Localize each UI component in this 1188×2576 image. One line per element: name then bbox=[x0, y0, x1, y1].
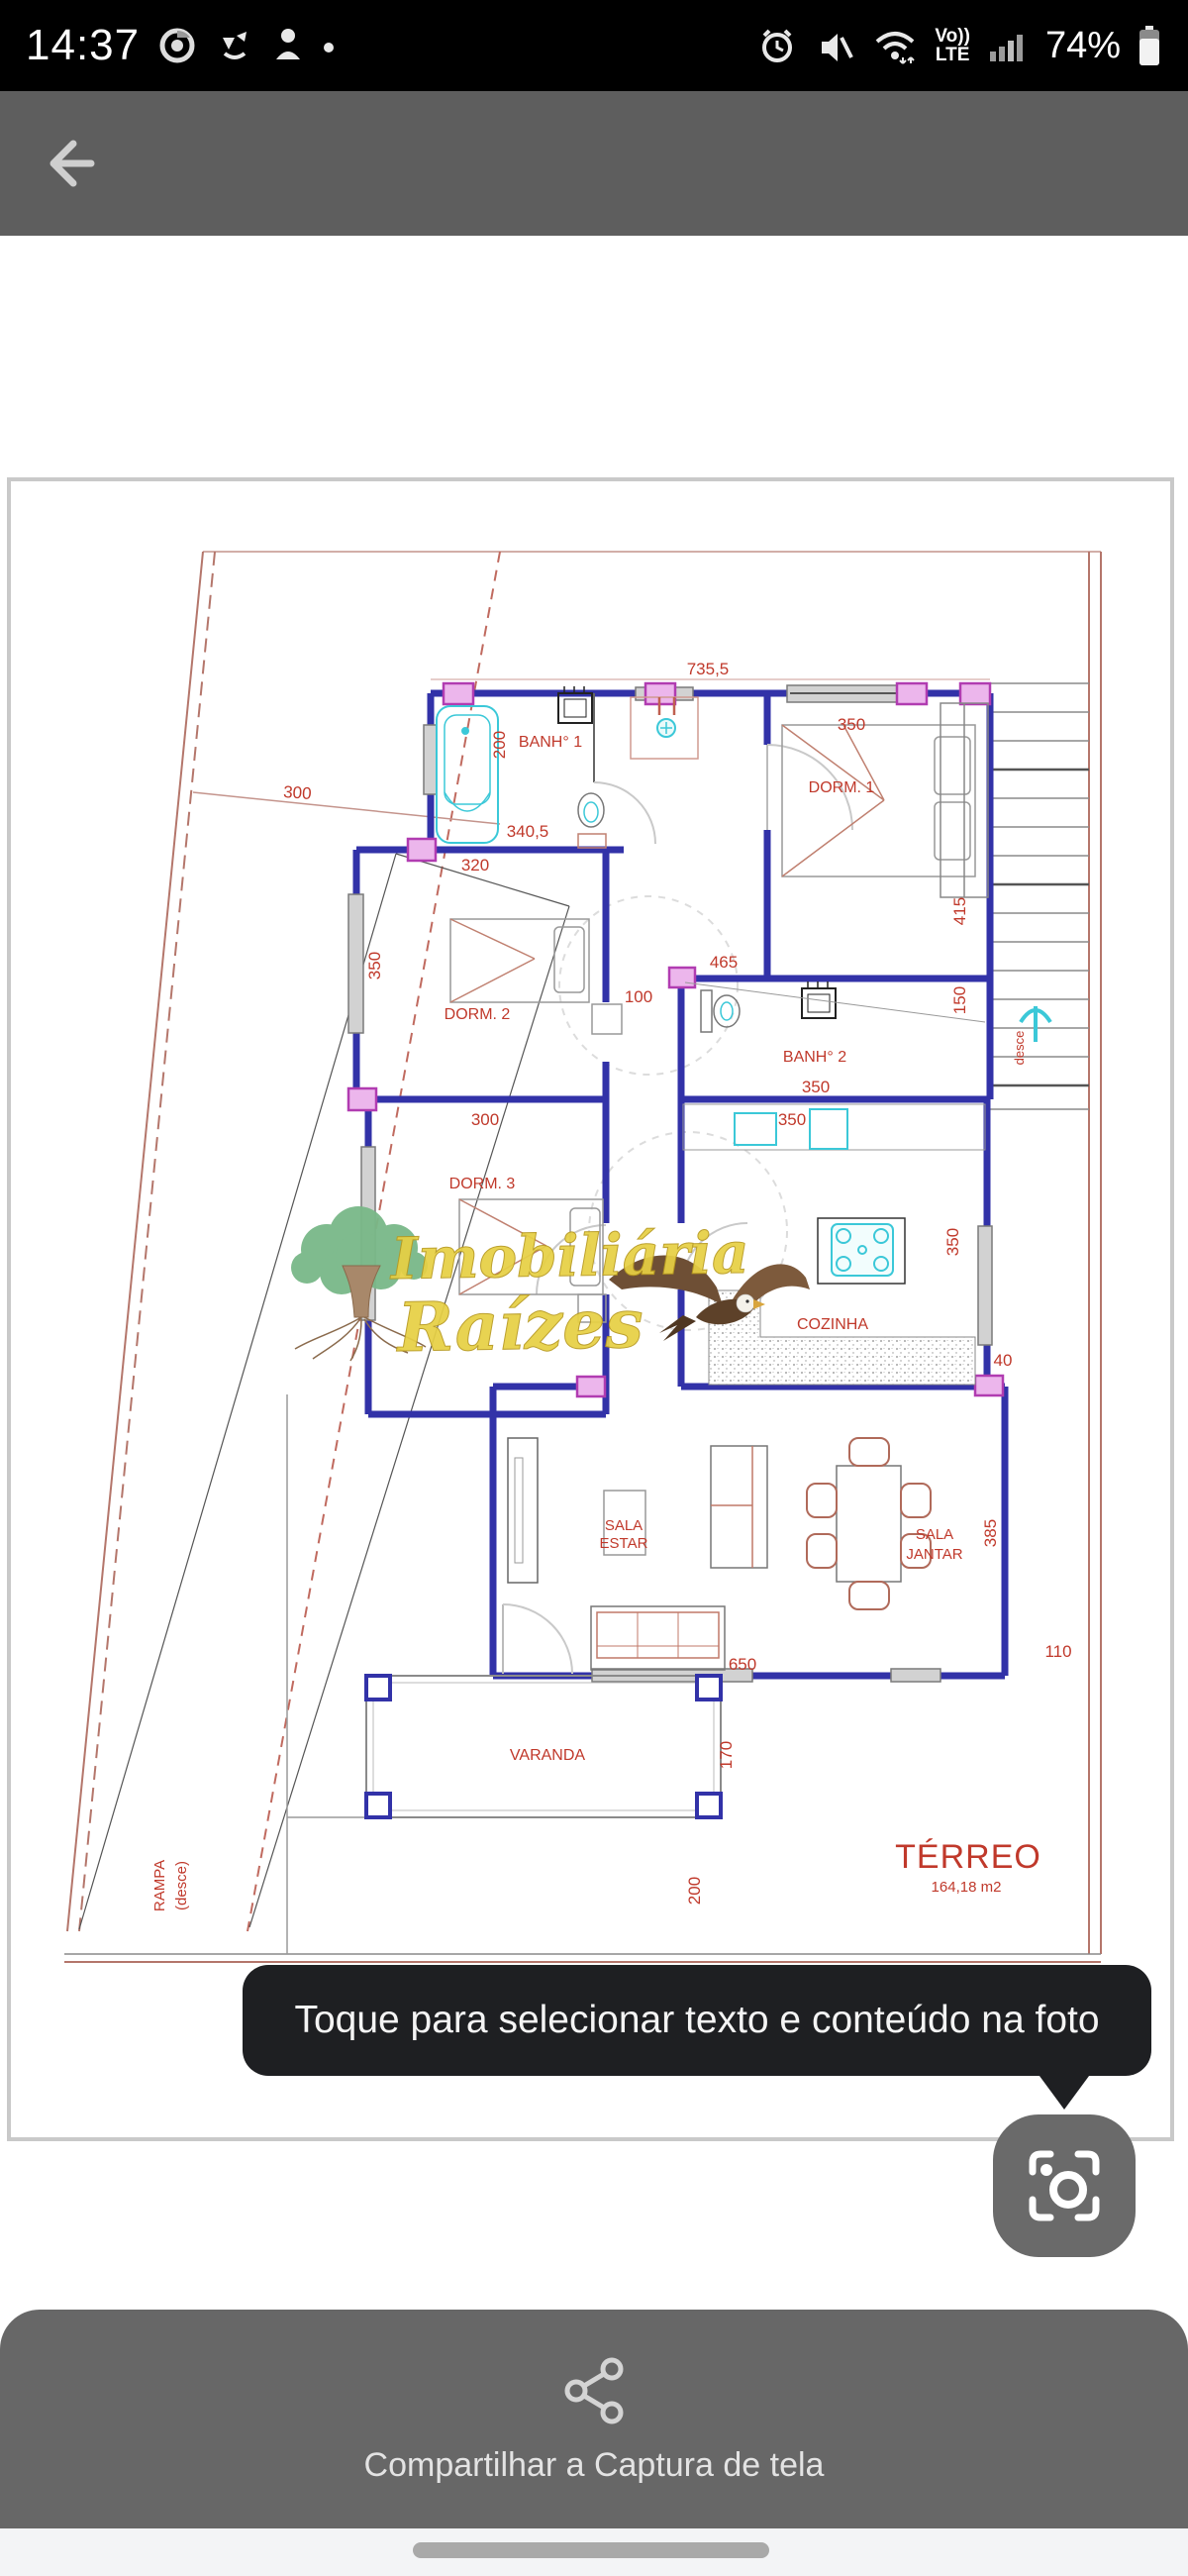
dim-label: 150 bbox=[950, 986, 969, 1014]
back-button[interactable] bbox=[34, 121, 119, 206]
status-right: Vo)) LTE 74% bbox=[756, 22, 1162, 69]
wifi-icon bbox=[871, 24, 919, 67]
room-label: DORM. 1 bbox=[809, 779, 875, 796]
watermark-line2: Raízes bbox=[395, 1285, 643, 1368]
volte-indicator: Vo)) LTE bbox=[935, 27, 970, 64]
signal-bars-icon bbox=[986, 24, 1030, 67]
share-icon bbox=[556, 2353, 632, 2428]
lens-tooltip: Toque para selecionar texto e conteúdo n… bbox=[243, 1965, 1151, 2076]
dim-label: 385 bbox=[981, 1519, 1000, 1547]
alarm-icon bbox=[756, 24, 798, 67]
share-screenshot-button[interactable]: Compartilhar a Captura de tela bbox=[0, 2310, 1188, 2528]
lens-capture-button[interactable] bbox=[993, 2114, 1136, 2257]
dim-label: 465 bbox=[710, 953, 738, 972]
more-dot-icon bbox=[322, 24, 336, 67]
volte-top: Vo)) bbox=[935, 27, 970, 46]
dim-label: 40 bbox=[994, 1351, 1013, 1370]
room-label: SALA bbox=[916, 1526, 953, 1543]
app-header bbox=[0, 91, 1188, 236]
dim-label: 350 bbox=[838, 715, 865, 734]
status-bar: 14:37 bbox=[0, 0, 1188, 91]
chrome-icon bbox=[155, 24, 199, 67]
home-indicator[interactable] bbox=[413, 2542, 769, 2558]
dim-label: 650 bbox=[729, 1655, 756, 1674]
dim-label: 320 bbox=[461, 856, 489, 875]
room-label: ESTAR bbox=[600, 1535, 648, 1552]
room-label: RAMPA bbox=[151, 1860, 168, 1911]
dim-label: 350 bbox=[365, 952, 384, 979]
notification-icon bbox=[215, 24, 254, 67]
battery-icon bbox=[1137, 22, 1162, 69]
plan-area: 164,18 m2 bbox=[932, 1879, 1002, 1896]
room-label: COZINHA bbox=[797, 1316, 868, 1333]
room-label: SALA bbox=[605, 1517, 643, 1534]
room-label: BANH° 1 bbox=[519, 734, 582, 751]
dim-label: 170 bbox=[717, 1741, 736, 1769]
battery-percent-text: 74% bbox=[1045, 25, 1121, 67]
dim-label: 340,5 bbox=[507, 822, 549, 841]
dim-label: 350 bbox=[802, 1078, 830, 1096]
room-label: DORM. 2 bbox=[445, 1006, 511, 1023]
dim-label: 735,5 bbox=[687, 660, 730, 678]
dim-label: 200 bbox=[685, 1877, 704, 1905]
dim-label: 200 bbox=[490, 731, 509, 759]
clock-text: 14:37 bbox=[26, 21, 140, 70]
mute-icon bbox=[814, 24, 855, 67]
dim-label: 300 bbox=[283, 782, 313, 803]
dim-label: desce bbox=[1012, 1031, 1027, 1066]
room-label: DORM. 3 bbox=[449, 1176, 516, 1192]
lens-tooltip-text: Toque para selecionar texto e conteúdo n… bbox=[294, 1999, 1099, 2042]
person-icon bbox=[270, 24, 306, 67]
share-label: Compartilhar a Captura de tela bbox=[364, 2446, 825, 2485]
dim-label: 415 bbox=[950, 897, 969, 925]
dim-label: 350 bbox=[778, 1110, 806, 1129]
room-label: VARANDA bbox=[510, 1747, 585, 1764]
status-left: 14:37 bbox=[26, 21, 336, 70]
plan-title: TÉRREO bbox=[895, 1838, 1041, 1876]
dim-label: 350 bbox=[943, 1228, 962, 1256]
lens-camera-icon bbox=[1019, 2140, 1110, 2231]
dim-label: 300 bbox=[471, 1110, 499, 1129]
dim-label: 110 bbox=[1044, 1642, 1071, 1661]
room-label: (desce) bbox=[173, 1861, 190, 1910]
dim-label: 100 bbox=[625, 987, 652, 1006]
watermark-line1: Imobiliária bbox=[388, 1219, 749, 1292]
room-label: JANTAR bbox=[906, 1546, 962, 1563]
volte-bottom: LTE bbox=[935, 46, 970, 64]
room-label: BANH° 2 bbox=[783, 1049, 846, 1066]
